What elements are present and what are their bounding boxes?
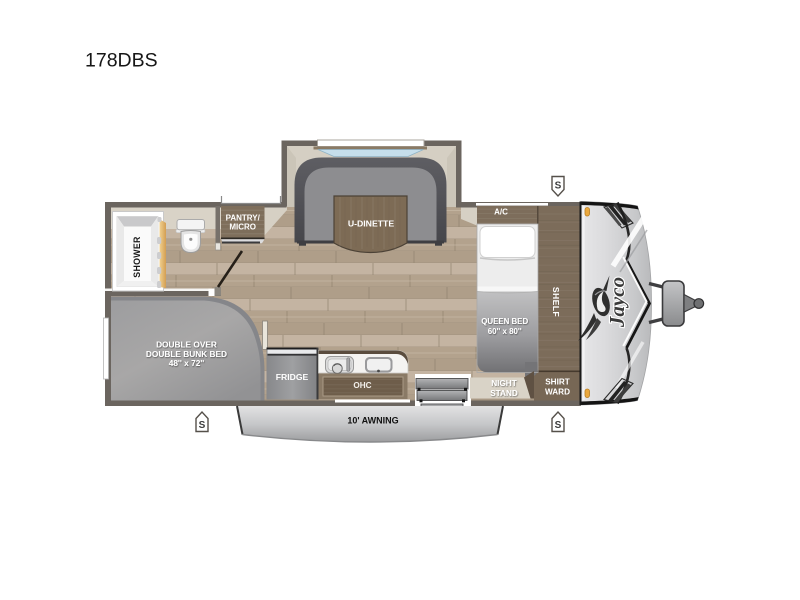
svg-text:WARD: WARD <box>545 388 570 397</box>
svg-text:U-DINETTE: U-DINETTE <box>348 218 395 228</box>
svg-text:48'' x 72'': 48'' x 72'' <box>169 358 205 368</box>
svg-text:FRIDGE: FRIDGE <box>276 372 309 382</box>
svg-text:SHOWER: SHOWER <box>132 236 142 278</box>
svg-text:OHC: OHC <box>353 381 371 390</box>
svg-text:S: S <box>555 420 562 431</box>
svg-text:A/C: A/C <box>494 207 508 216</box>
svg-text:NIGHT: NIGHT <box>491 379 516 388</box>
svg-text:10' AWNING: 10' AWNING <box>347 416 398 426</box>
svg-text:PANTRY/: PANTRY/ <box>226 213 261 222</box>
svg-text:SHIRT: SHIRT <box>545 378 570 387</box>
svg-text:178DBS: 178DBS <box>85 50 158 72</box>
svg-text:S: S <box>199 420 206 431</box>
svg-text:60'' x 80'': 60'' x 80'' <box>488 327 522 336</box>
svg-text:MICRO: MICRO <box>229 223 256 232</box>
svg-text:S: S <box>555 181 562 192</box>
svg-text:QUEEN BED: QUEEN BED <box>481 317 528 326</box>
svg-text:SHELF: SHELF <box>551 287 561 317</box>
svg-text:STAND: STAND <box>490 389 518 398</box>
